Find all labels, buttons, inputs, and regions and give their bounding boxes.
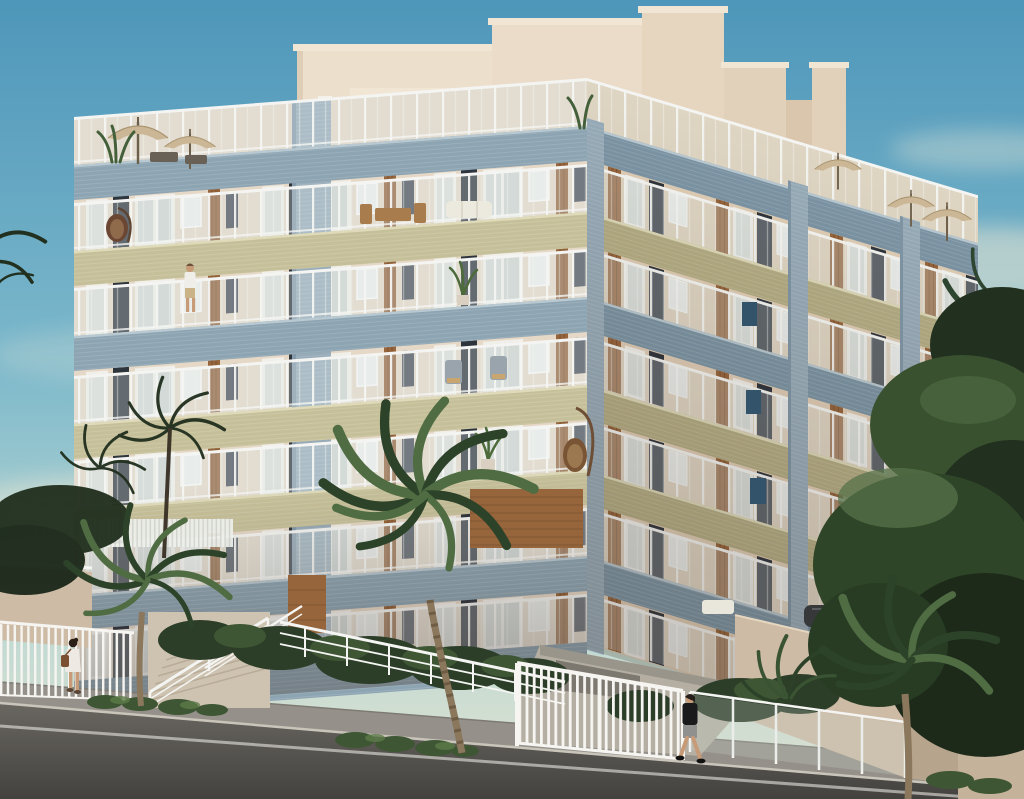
architectural-rendering — [0, 0, 1024, 799]
white-bench — [702, 600, 734, 614]
navy-cabinet — [742, 302, 757, 326]
navy-cabinet — [746, 390, 761, 414]
navy-cabinet — [750, 478, 766, 504]
white-sofa — [446, 201, 492, 218]
